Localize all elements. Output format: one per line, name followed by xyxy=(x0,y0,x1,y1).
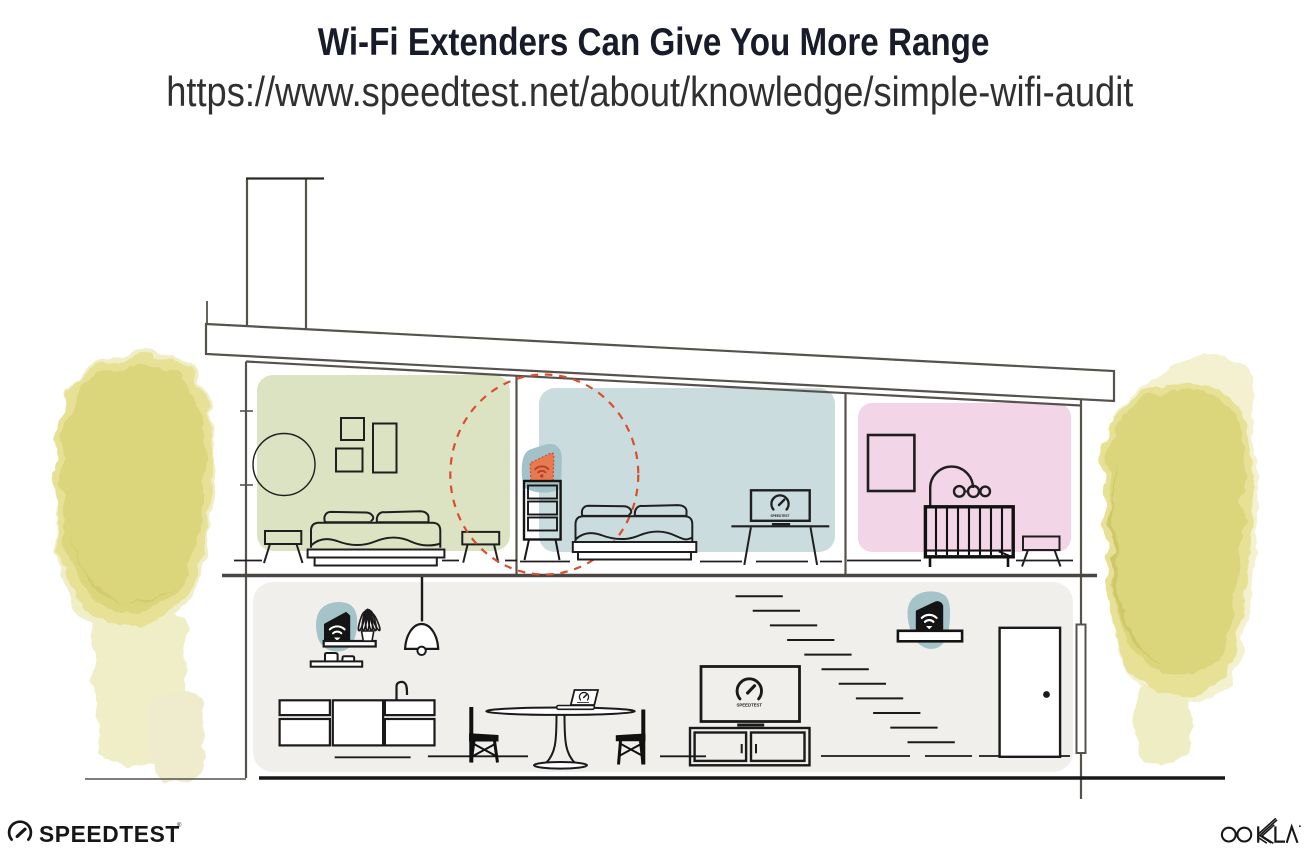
svg-text:SPEEDTEST: SPEEDTEST xyxy=(737,703,763,708)
svg-text:SPEEDTEST: SPEEDTEST xyxy=(771,514,790,518)
svg-text:SPEEDTEST: SPEEDTEST xyxy=(39,821,180,847)
svg-text:®: ® xyxy=(177,822,182,829)
